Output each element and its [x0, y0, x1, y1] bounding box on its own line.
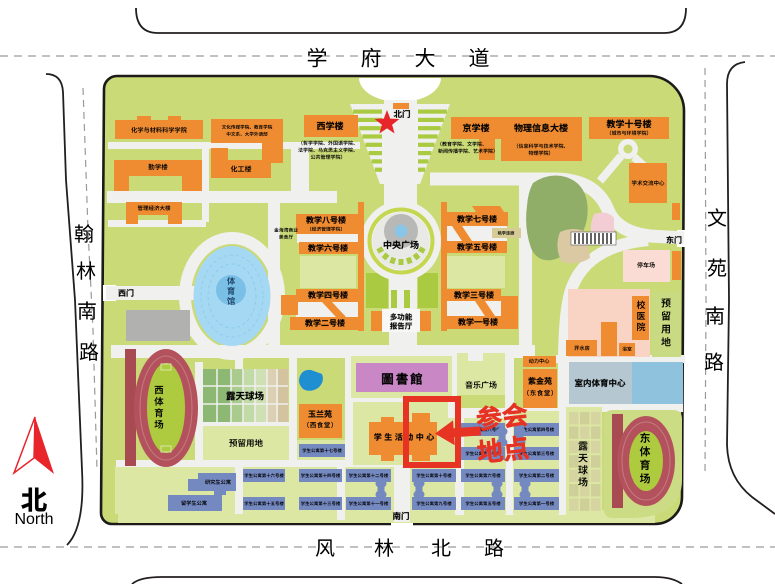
svg-text:North: North — [14, 511, 53, 528]
